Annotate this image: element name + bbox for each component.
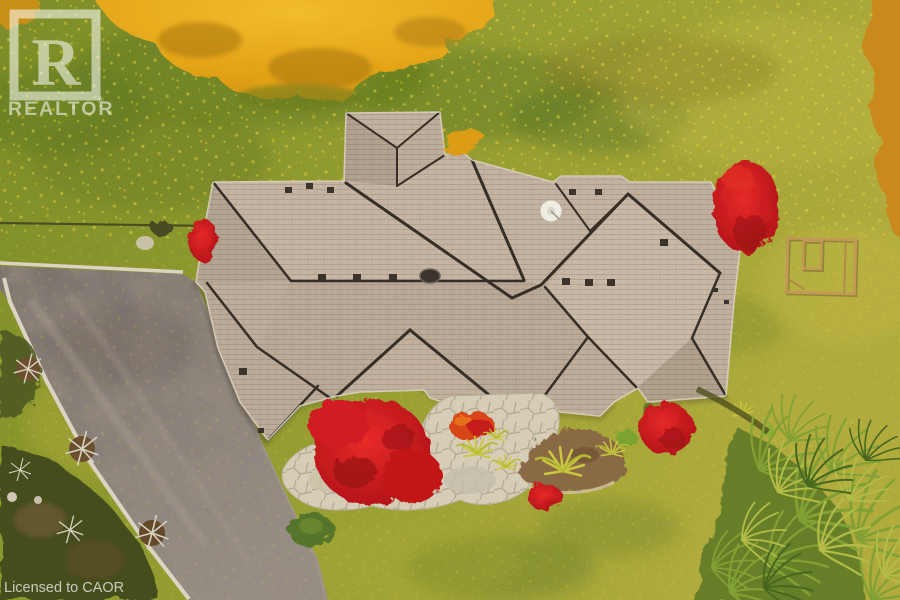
red-maple-right-lower — [639, 402, 693, 454]
bare-shrub — [152, 221, 174, 237]
realtor-logo-letter: R — [31, 24, 81, 100]
garden-rock — [136, 236, 154, 250]
satellite-dish — [540, 200, 562, 222]
registered-mark: ® — [97, 95, 104, 105]
roof-turbine-vent — [420, 269, 440, 283]
realtor-wordmark: REALTOR ® — [8, 95, 114, 120]
aerial-photo: R REALTOR ® Licensed to CAOR — [0, 0, 900, 600]
aerial-photo-canvas: R REALTOR ® Licensed to CAOR — [0, 0, 900, 600]
orange-bush — [449, 411, 495, 441]
red-maple-right-upper — [713, 161, 779, 253]
red-bush-small — [528, 484, 562, 510]
license-watermark: Licensed to CAOR — [4, 580, 124, 596]
red-maple-left — [188, 219, 218, 261]
